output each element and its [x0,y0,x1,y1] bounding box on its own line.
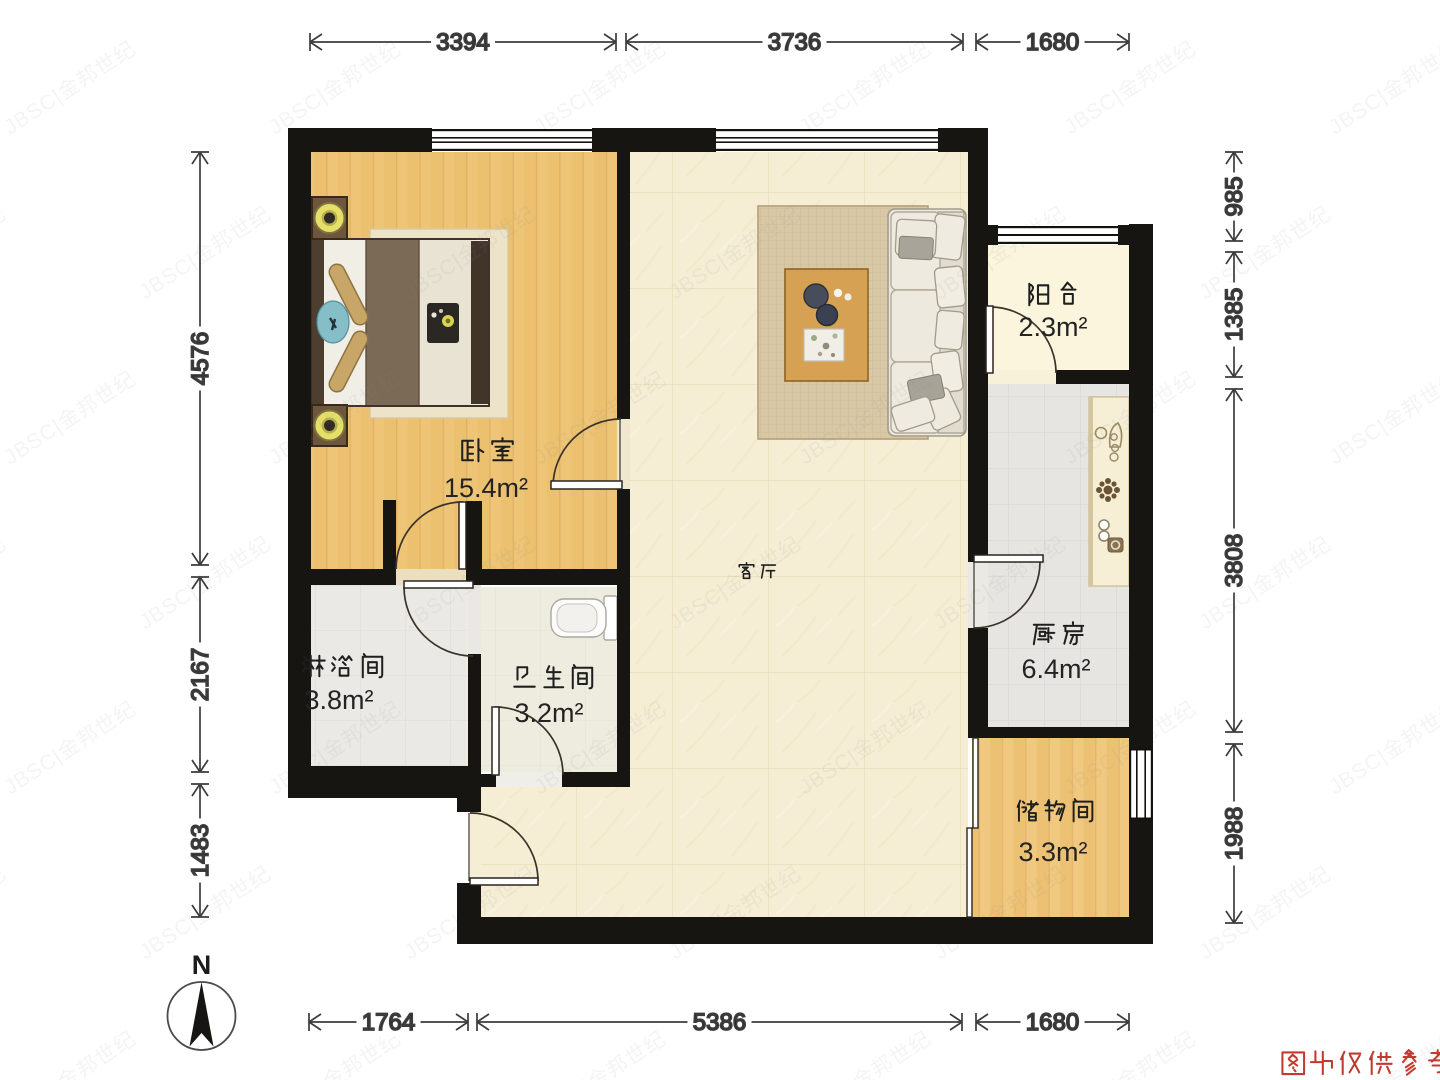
svg-text:3.8m²: 3.8m² [304,685,373,715]
svg-text:15.4m²: 15.4m² [444,473,528,503]
svg-text:3.3m²: 3.3m² [1018,837,1087,867]
svg-text:3736: 3736 [768,29,821,56]
svg-text:2167: 2167 [187,648,214,701]
svg-text:N: N [192,950,212,980]
svg-text:3.2m²: 3.2m² [514,698,583,728]
svg-text:1988: 1988 [1221,807,1248,860]
svg-text:3808: 3808 [1221,534,1248,587]
svg-text:985: 985 [1221,176,1248,216]
svg-text:1680: 1680 [1026,29,1079,56]
svg-text:3394: 3394 [436,29,489,56]
svg-text:6.4m²: 6.4m² [1021,654,1090,684]
svg-text:4576: 4576 [187,332,214,385]
svg-text:5386: 5386 [693,1009,746,1036]
svg-text:2.3m²: 2.3m² [1018,312,1087,342]
svg-text:1483: 1483 [187,824,214,877]
svg-text:1764: 1764 [362,1009,415,1036]
svg-text:1385: 1385 [1221,288,1248,341]
svg-text:1680: 1680 [1026,1009,1079,1036]
